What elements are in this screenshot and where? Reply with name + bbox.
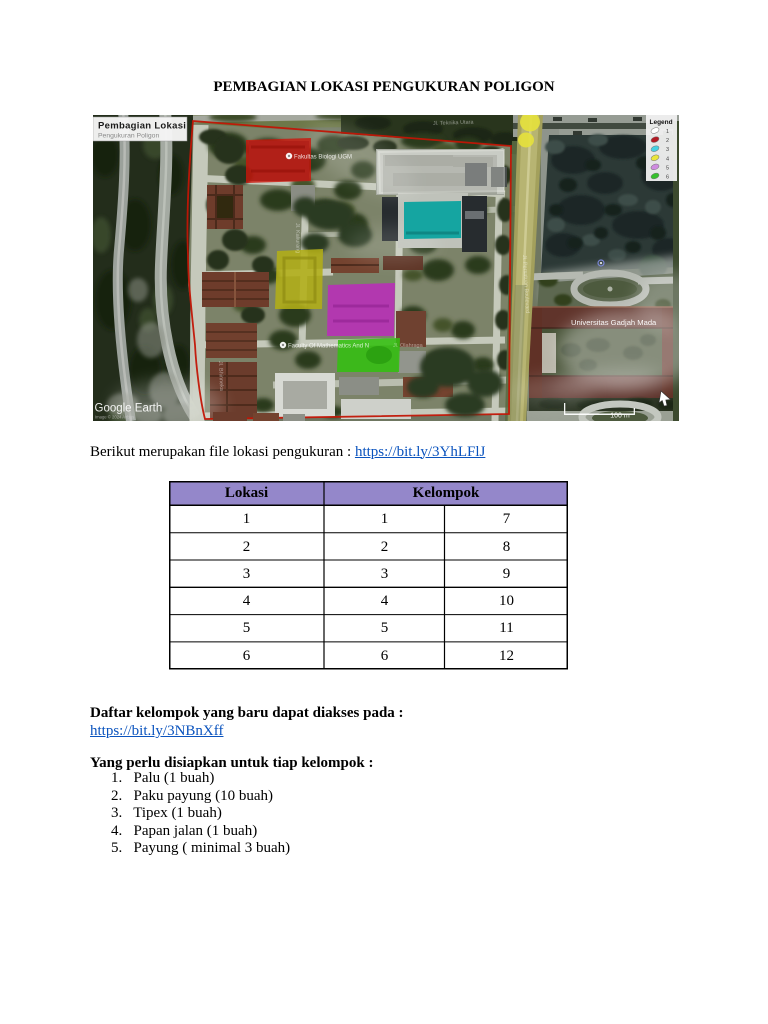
svg-text:Faculty Of Mathematics And N: Faculty Of Mathematics And N bbox=[288, 344, 369, 350]
svg-text:Legend: Legend bbox=[650, 119, 673, 126]
svg-text:Fakultas Biologi UGM: Fakultas Biologi UGM bbox=[294, 155, 352, 161]
svg-text:3: 3 bbox=[666, 147, 669, 153]
svg-text:6: 6 bbox=[666, 175, 669, 181]
svg-text:Jl. Olahraga: Jl. Olahraga bbox=[393, 343, 424, 349]
svg-text:2: 2 bbox=[666, 138, 669, 144]
svg-text:Pembagian Lokasi: Pembagian Lokasi bbox=[98, 121, 186, 132]
svg-text:Google Earth: Google Earth bbox=[95, 403, 163, 415]
svg-text:Jl. Kaliurang: Jl. Kaliurang bbox=[294, 223, 301, 253]
svg-text:1: 1 bbox=[666, 129, 669, 135]
svg-text:Image © 2024 Airbus: Image © 2024 Airbus bbox=[95, 415, 134, 420]
svg-text:Pengukuran Poligon: Pengukuran Poligon bbox=[98, 133, 159, 140]
svg-text:5: 5 bbox=[666, 165, 669, 171]
svg-text:Universitas Gadjah Mada: Universitas Gadjah Mada bbox=[571, 318, 657, 327]
svg-text:4: 4 bbox=[666, 156, 669, 162]
svg-text:Jl. Bhinneka: Jl. Bhinneka bbox=[217, 361, 224, 392]
svg-text:100 m: 100 m bbox=[610, 413, 630, 420]
